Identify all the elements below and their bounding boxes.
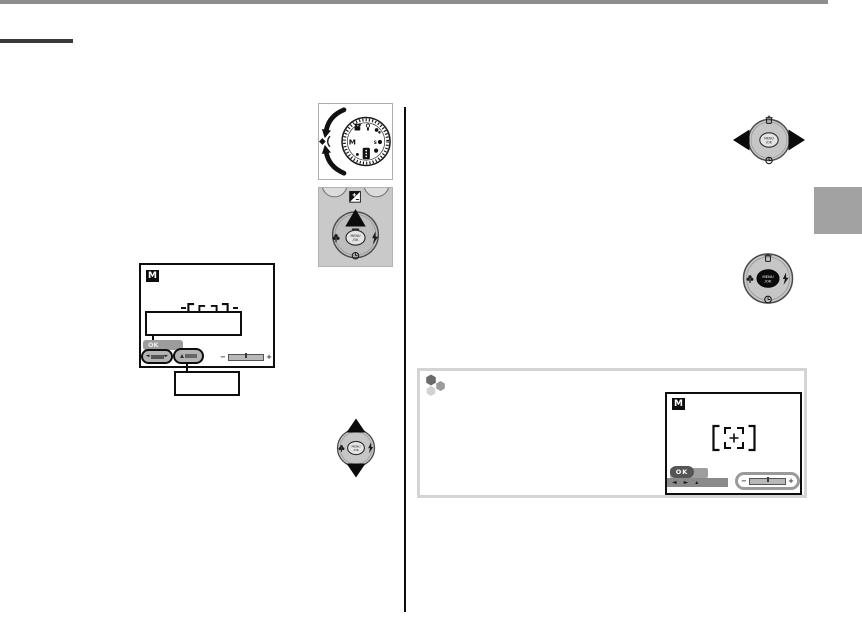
indicator-bar bbox=[228, 354, 264, 361]
aperture-field bbox=[173, 348, 204, 364]
multi-selector-up-icon: MENU /OK bbox=[319, 188, 392, 266]
minus-label: − bbox=[741, 477, 747, 485]
camera-button-right bbox=[364, 188, 389, 197]
selector-up-down-figure: MENU /OK bbox=[332, 417, 380, 479]
multi-selector-up-down-icon: MENU /OK bbox=[332, 417, 380, 479]
ok-label: /OK bbox=[766, 140, 773, 144]
selector-menu-ok-figure: MENU /OK bbox=[736, 244, 800, 314]
mode-dial-figure: M S bbox=[318, 103, 393, 180]
left-arrow-icon: ◄ bbox=[146, 354, 150, 359]
exposure-indicator-highlight: − + bbox=[735, 472, 800, 490]
column-divider bbox=[404, 107, 406, 612]
plus-label: + bbox=[788, 477, 794, 485]
ok-indicator: OK bbox=[670, 466, 694, 478]
center-tick bbox=[767, 477, 769, 482]
selector-left-right-figure: MENU /OK bbox=[730, 110, 808, 174]
section-heading-underline bbox=[0, 39, 73, 43]
value-bar bbox=[151, 355, 164, 359]
up-arrow-icon: ▴ bbox=[695, 480, 698, 486]
exposure-compensation-icon bbox=[350, 191, 361, 202]
callout-box-shutter bbox=[145, 311, 242, 336]
ok-label: /OK bbox=[765, 278, 772, 283]
right-arrow-icon: ► bbox=[684, 480, 689, 486]
minus-label: − bbox=[220, 353, 226, 361]
dial-auto-box bbox=[363, 148, 370, 160]
center-tick bbox=[245, 353, 247, 358]
right-arrow-icon: ► bbox=[165, 354, 169, 359]
multi-selector-menu-ok-icon: MENU /OK bbox=[736, 244, 800, 314]
left-arrow-icon bbox=[733, 130, 750, 151]
value-bar bbox=[185, 354, 197, 358]
lcd-screen-exposure: M OK ◄ ► ▴ − + bbox=[665, 392, 802, 495]
focus-frame-icon bbox=[711, 424, 757, 452]
mode-badge: M bbox=[672, 398, 685, 410]
up-arrow-icon bbox=[347, 419, 366, 433]
top-rule bbox=[0, 0, 828, 4]
selector-up-figure: MENU /OK bbox=[318, 187, 393, 267]
manual-page: M S bbox=[0, 0, 862, 617]
plus-label: + bbox=[266, 353, 272, 361]
down-arrow-icon bbox=[347, 464, 366, 478]
dial-index-mark bbox=[319, 136, 330, 147]
right-arrow-icon bbox=[789, 130, 806, 151]
callout-box-aperture bbox=[174, 371, 240, 396]
exposure-indicator: − + bbox=[220, 352, 272, 362]
multi-selector-left-right-icon: MENU /OK bbox=[730, 110, 808, 174]
dial-natural-light-icon bbox=[374, 148, 378, 152]
left-arrow-icon: ◄ bbox=[672, 480, 677, 486]
hexagon-cluster-icon bbox=[422, 372, 450, 400]
ok-label: /OK bbox=[352, 238, 359, 242]
note-box: M OK ◄ ► ▴ − + bbox=[417, 368, 807, 498]
nav-hint-bar: ◄ ► ▴ bbox=[667, 478, 728, 487]
svg-text:S: S bbox=[374, 140, 377, 146]
camera-button-left bbox=[322, 188, 347, 197]
mode-dial-icon: M S bbox=[319, 104, 391, 178]
hud-dash-right bbox=[233, 307, 238, 309]
exposure-indicator: − + bbox=[741, 477, 794, 485]
dial-mode-m-label: M bbox=[349, 137, 356, 146]
shutter-speed-field: ◄ ► bbox=[141, 349, 173, 364]
up-tick-icon bbox=[180, 354, 184, 358]
indicator-bar bbox=[749, 478, 786, 485]
page-edge-tab bbox=[814, 187, 862, 234]
dial-aperture-icon bbox=[356, 153, 359, 156]
mode-badge: M bbox=[146, 270, 159, 282]
lcd-screen-manual-mode: M OK ◄ ► − + bbox=[139, 263, 275, 368]
